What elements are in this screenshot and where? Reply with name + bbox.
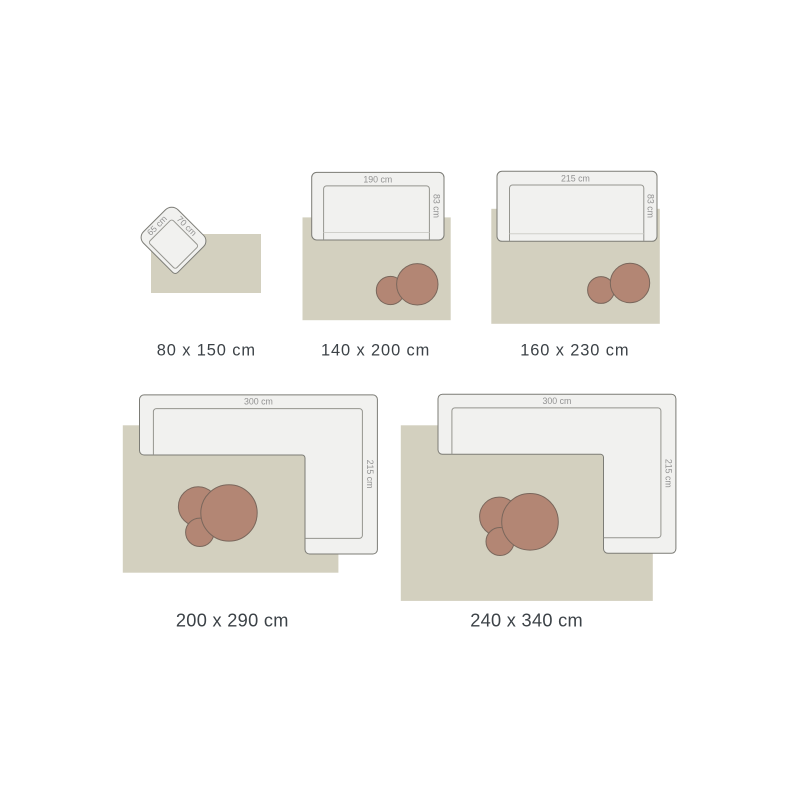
svg-text:240 x 340 cm: 240 x 340 cm: [470, 610, 583, 630]
svg-text:215 cm: 215 cm: [663, 459, 673, 488]
svg-text:190 cm: 190 cm: [363, 174, 392, 184]
svg-text:83 cm: 83 cm: [645, 194, 655, 218]
svg-text:83 cm: 83 cm: [431, 194, 441, 218]
svg-text:140 x 200 cm: 140 x 200 cm: [321, 341, 430, 359]
svg-text:215 cm: 215 cm: [561, 173, 590, 183]
svg-text:300 cm: 300 cm: [244, 397, 273, 407]
svg-text:200 x 290 cm: 200 x 290 cm: [176, 610, 289, 630]
svg-text:80 x 150 cm: 80 x 150 cm: [157, 341, 256, 359]
svg-text:300 cm: 300 cm: [542, 396, 571, 406]
svg-text:215 cm: 215 cm: [365, 460, 375, 489]
svg-text:160 x 230 cm: 160 x 230 cm: [520, 341, 629, 359]
